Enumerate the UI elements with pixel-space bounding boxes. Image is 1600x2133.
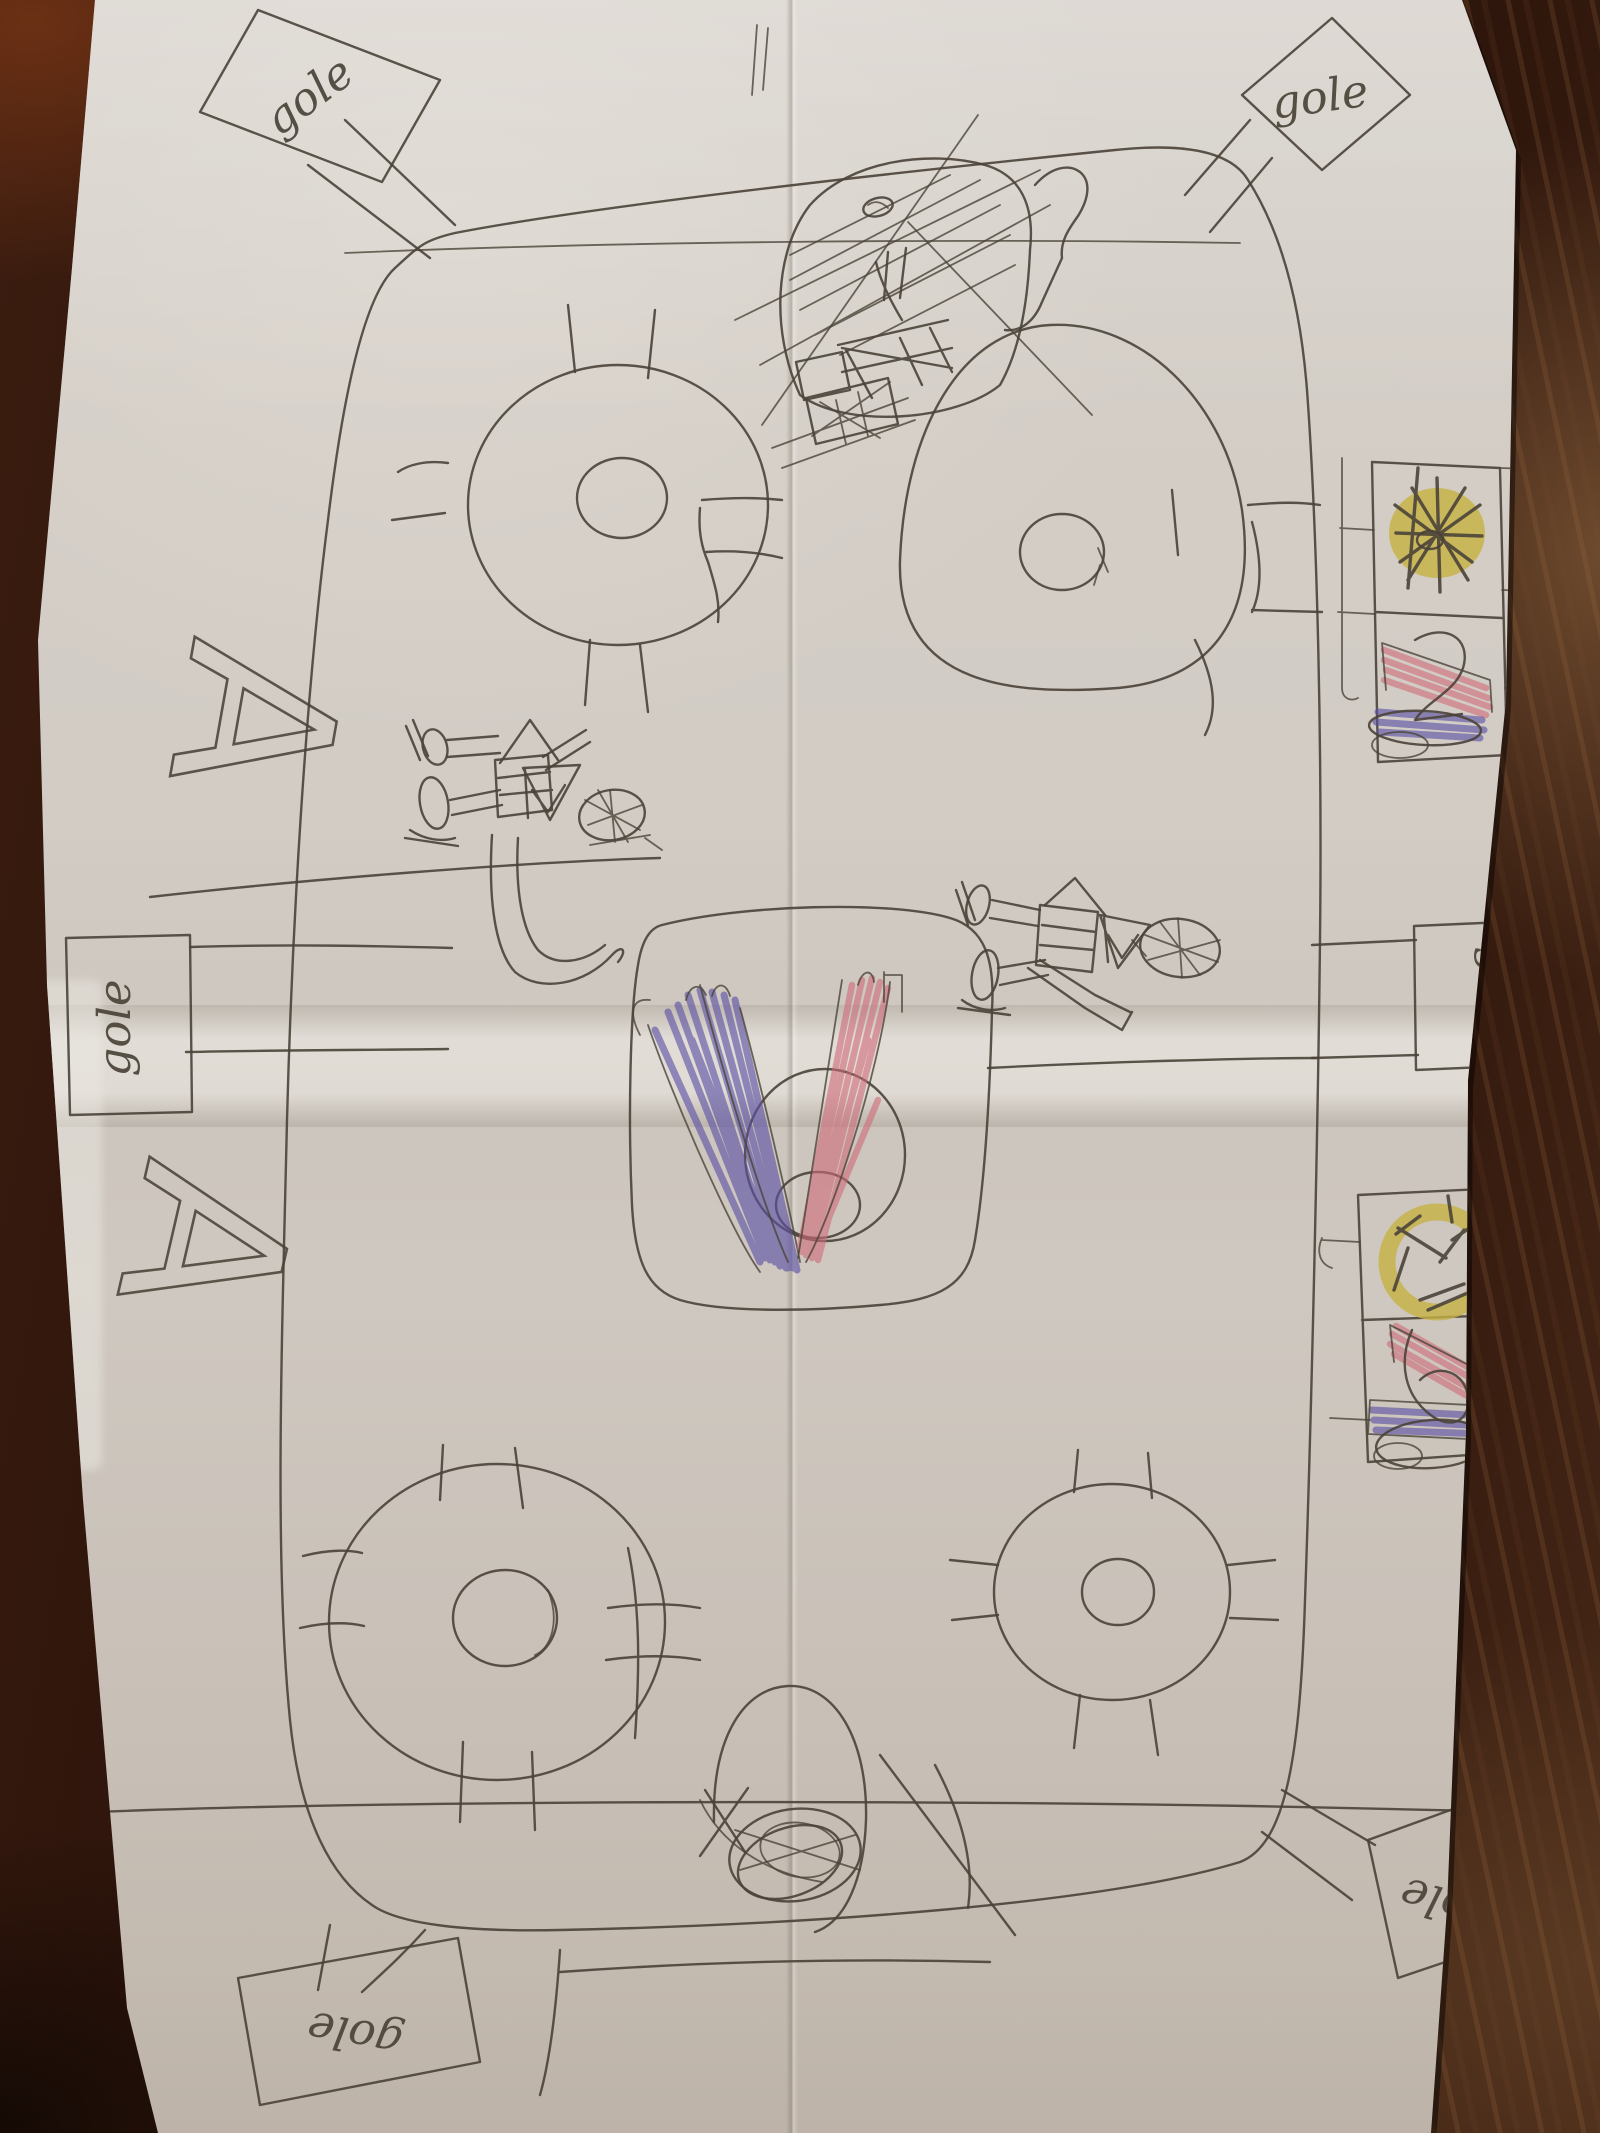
- stick-figure-pair-left: [405, 720, 662, 984]
- goal-label: gole: [303, 2001, 408, 2070]
- stick-figure-pair-right: [956, 878, 1224, 1030]
- goal-flag-bottom-left: gole: [238, 1938, 480, 2105]
- v-scribble-red: [798, 972, 902, 1262]
- rosette-bottom-left: [300, 1445, 700, 1830]
- goal-label: gole: [1268, 64, 1371, 130]
- letter-a-upper: A: [121, 626, 389, 812]
- goal-flag-top-right: gole: [1242, 18, 1410, 170]
- drawing-paper: gole gole gole gole gole gole: [0, 0, 1600, 2133]
- goal-flag-top-left: gole: [200, 10, 440, 182]
- rosette-top-right: [900, 325, 1322, 735]
- goal-label: gole: [88, 980, 141, 1077]
- table-outline: [281, 25, 1321, 1930]
- goal-flag-middle-left: gole: [66, 935, 192, 1115]
- photo-of-childs-drawing: gole gole gole gole gole gole: [0, 0, 1600, 2133]
- red-scribble-upper: [1384, 650, 1490, 715]
- top-goal-scribble: [735, 115, 1092, 468]
- goal-label: gole: [254, 45, 363, 146]
- bottom-goal-scribble: [700, 1686, 970, 1932]
- rosette-bottom-right: [950, 1450, 1278, 1755]
- blue-scribble-upper: [1376, 712, 1484, 738]
- letter-a-lower: A: [69, 1144, 342, 1341]
- v-scribble-blue: [633, 985, 800, 1272]
- rosette-top-left: [392, 305, 782, 712]
- pen-drawing: gole gole gole gole gole gole: [0, 0, 1600, 2133]
